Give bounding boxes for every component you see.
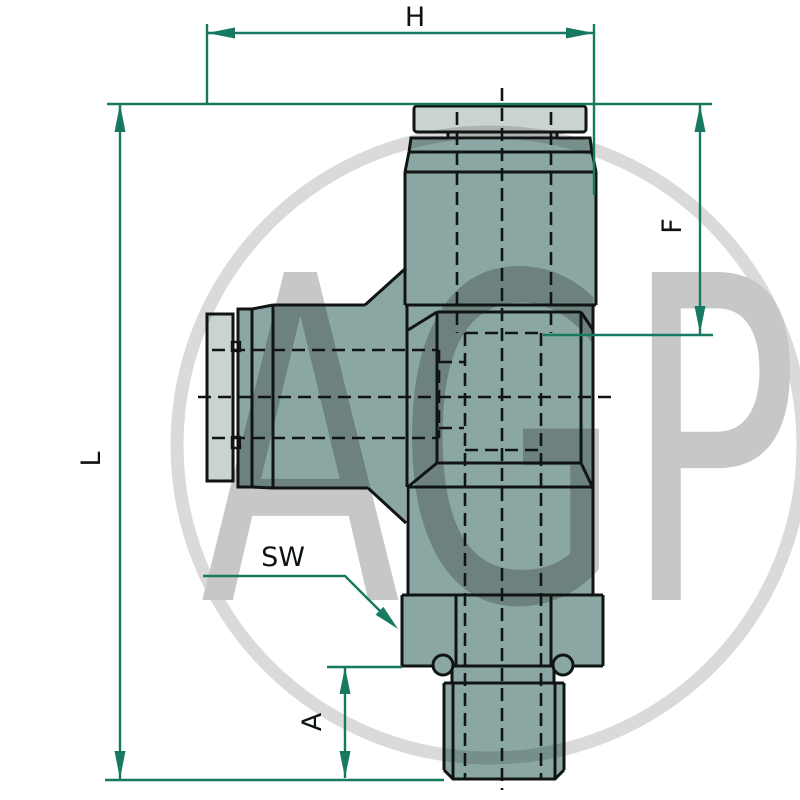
o-ring-right (553, 655, 573, 675)
technical-drawing-canvas: AGP (0, 0, 800, 800)
dimension-label-f: F (657, 218, 688, 234)
watermark-text: AGP (200, 183, 800, 707)
h-arrowhead-right-icon (566, 28, 594, 39)
o-ring-left (433, 655, 453, 675)
dimension-label-a: A (297, 712, 328, 731)
h-arrowhead-left-icon (207, 28, 235, 39)
dimension-label-l: L (76, 451, 107, 466)
dimension-label-h: H (405, 2, 425, 33)
tee-fitting-drawing: AGP (0, 0, 800, 800)
f-arrowhead-top-icon (695, 105, 706, 132)
l-arrowhead-bottom-icon (115, 751, 126, 779)
dimension-label-sw: SW (261, 542, 305, 573)
a-arrowhead-bottom-icon (340, 751, 351, 778)
l-arrowhead-top-icon (115, 104, 126, 132)
watermark: AGP (177, 132, 800, 758)
